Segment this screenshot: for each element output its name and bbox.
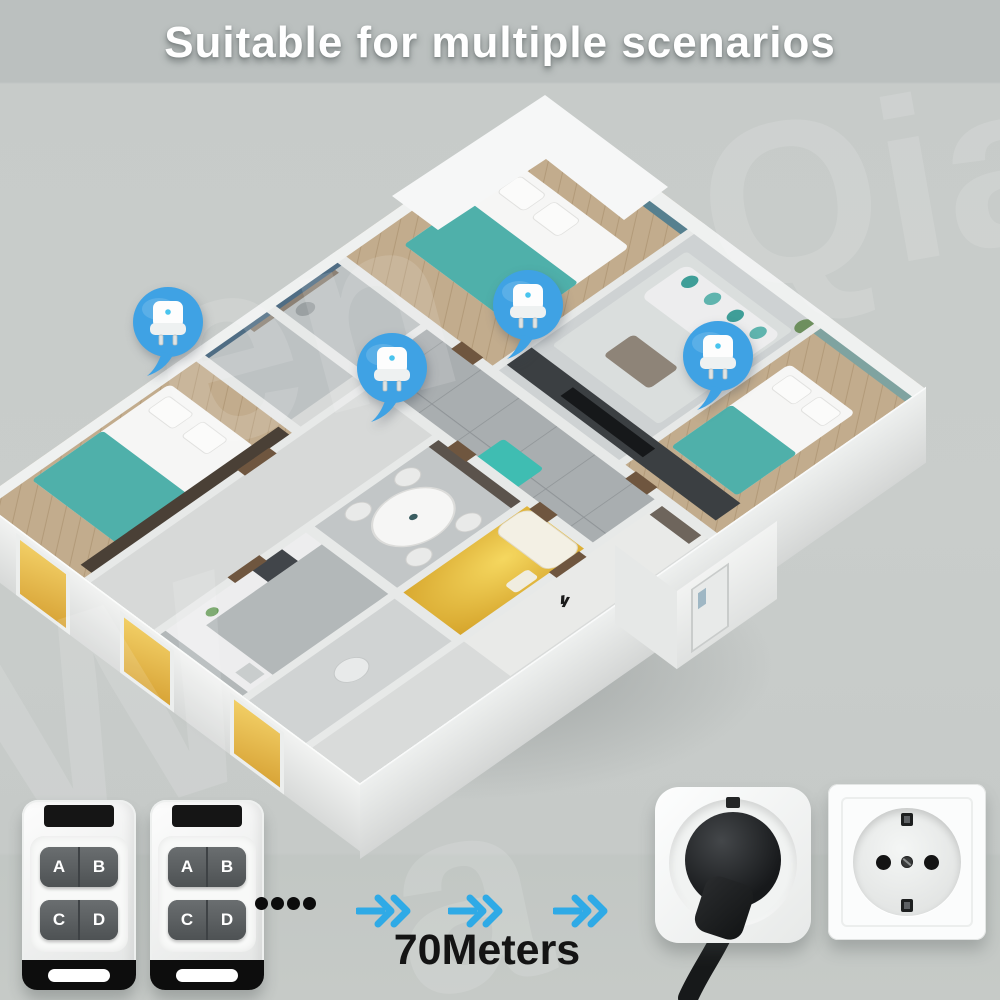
smart-plug-pin	[492, 269, 564, 363]
dot	[271, 897, 284, 910]
page-title: Suitable for multiple scenarios	[0, 18, 1000, 68]
signal-arrow-icon	[448, 893, 508, 929]
remote-button-d: D	[206, 900, 246, 940]
earth-clip	[901, 813, 913, 826]
remote-led-window	[172, 805, 242, 827]
remote-base	[22, 960, 136, 990]
remote-led-window	[44, 805, 114, 827]
remote-control-2: A B C D	[150, 800, 264, 990]
remote-control-1: A B C D	[22, 800, 136, 990]
ellipsis-dots	[255, 897, 316, 910]
remote-button-panel: A B C D	[158, 836, 256, 952]
dot	[303, 897, 316, 910]
plug-led	[165, 309, 171, 315]
door-glass	[698, 588, 706, 610]
socket-hole	[924, 855, 939, 870]
signal-arrow-icon	[356, 893, 416, 929]
remote-button-a: A	[168, 847, 206, 887]
remote-button-a: A	[40, 847, 78, 887]
remote-button-b: B	[78, 847, 118, 887]
earth-clip	[901, 899, 913, 912]
earth-clip	[726, 797, 740, 808]
keyring-slot	[176, 969, 238, 982]
eu-wall-socket	[828, 784, 986, 940]
smart-plug-pin	[356, 332, 428, 426]
remote-button-d: D	[78, 900, 118, 940]
range-label: 70Meters	[372, 926, 602, 975]
remote-button-panel: A B C D	[30, 836, 128, 952]
signal-arrow-icon	[553, 893, 613, 929]
dot	[287, 897, 300, 910]
remote-button-c: C	[168, 900, 206, 940]
smart-plug-pin	[132, 286, 204, 380]
center-screw	[901, 856, 913, 868]
dot	[255, 897, 268, 910]
keyring-slot	[48, 969, 110, 982]
remote-button-c: C	[40, 900, 78, 940]
product-marketing-image: W en a Qia Suitable for multiple scenari…	[0, 0, 1000, 1000]
remote-base	[150, 960, 264, 990]
remote-button-b: B	[206, 847, 246, 887]
smart-plug-pin	[682, 320, 754, 414]
socket-hole	[876, 855, 891, 870]
smart-plug-socket	[655, 787, 811, 943]
